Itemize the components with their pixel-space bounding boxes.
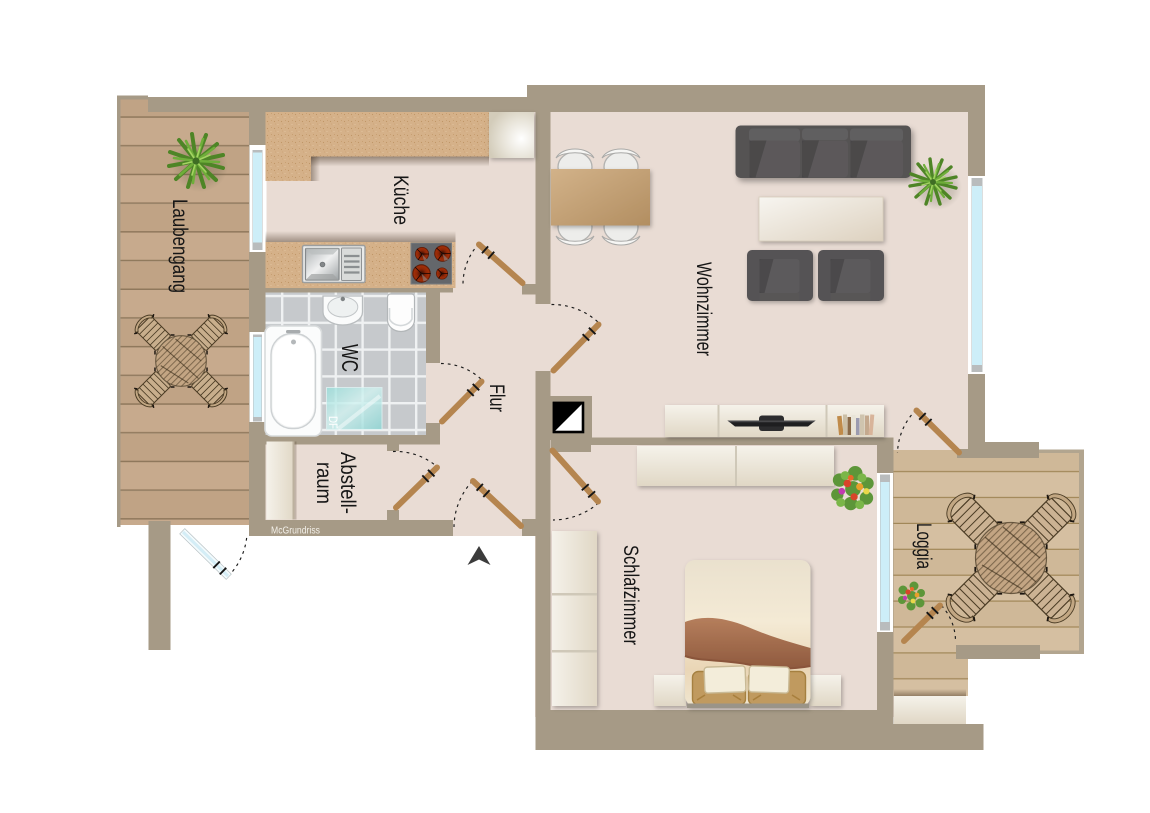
svg-text:Küche: Küche [389,175,412,225]
svg-text:Flur: Flur [485,384,508,412]
svg-text:Abstell-: Abstell- [336,452,359,514]
svg-text:WC: WC [337,344,363,372]
svg-text:Schlafzimmer: Schlafzimmer [619,545,642,645]
svg-text:raum: raum [312,462,335,504]
svg-text:DF: DF [326,416,338,429]
svg-text:Loggia: Loggia [912,523,935,569]
svg-text:Wohnzimmer: Wohnzimmer [692,262,715,356]
svg-text:McGrundriss: McGrundriss [271,526,320,537]
svg-text:Laubengang: Laubengang [168,199,191,293]
